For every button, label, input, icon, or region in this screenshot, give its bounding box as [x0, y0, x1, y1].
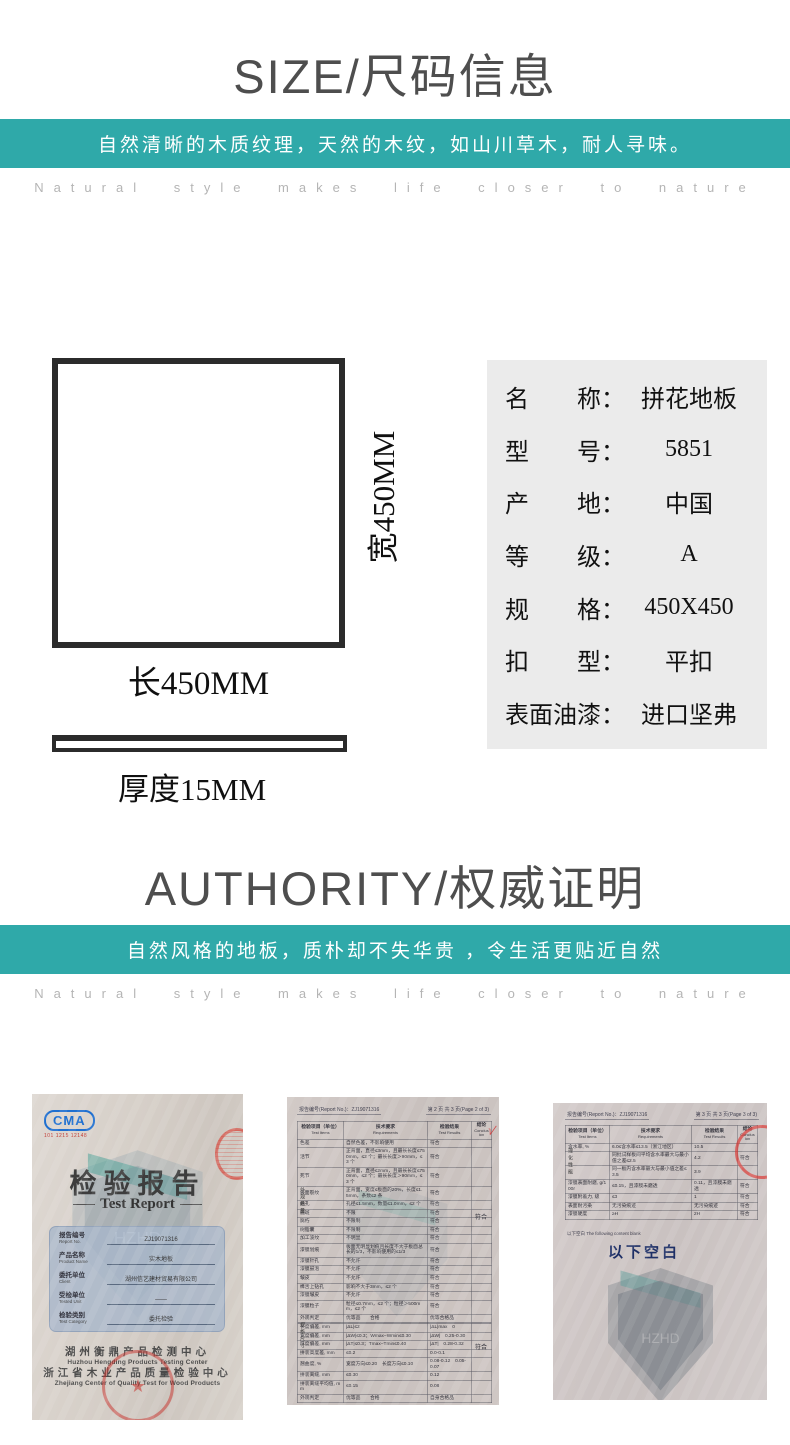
info-row: 受检单位 Tested Unit ——	[59, 1293, 215, 1305]
spec-label: 型 号	[505, 432, 601, 467]
table-cell	[472, 1300, 492, 1314]
info-value: 委托检验	[107, 1314, 215, 1325]
table-cell: 符合	[738, 1194, 758, 1203]
spec-value: 进口坚弗	[625, 695, 767, 730]
table-cell	[472, 1283, 492, 1292]
table-cell: 漆膜粒子	[298, 1300, 344, 1314]
info-label-en: Product Name	[59, 1260, 107, 1265]
spec-colon: ：	[601, 379, 625, 414]
table-row: 髓斑不限符合	[298, 1209, 492, 1218]
info-label-en: Report No.	[59, 1240, 107, 1245]
table-row: 漆膜粒子粒径≤0.7mm，≤2 个；粒径＞500mm，≤2 个符合	[298, 1300, 492, 1314]
size-section-title: SIZE/尺码信息	[0, 38, 790, 107]
conclusion-value: 符合	[471, 1212, 491, 1221]
width-dimension-label: 宽450MM	[358, 397, 398, 597]
group-label-dimensions: 规格尺寸	[299, 1322, 306, 1350]
table-cell: 同批试样板间平均含水率最大与最小值之差≤2.5	[610, 1152, 692, 1166]
report-number: 报告编号(Report No.)：ZJ19071316	[297, 1106, 381, 1115]
info-label: 检验类别 Test Category	[59, 1313, 107, 1325]
spec-row-origin: 产 地： 中国	[505, 484, 767, 519]
table-cell: 2H	[692, 1211, 738, 1220]
table-cell: 不限制	[344, 1218, 428, 1227]
table-cell: 符合	[428, 1167, 472, 1187]
table-row: 皱皮不允许符合	[298, 1274, 492, 1283]
seal-star-icon: ★	[130, 1376, 146, 1397]
group-label-physical: 理化性能	[567, 1148, 574, 1176]
report-page-header: 报告编号(Report No.)：ZJ19071316 第 3 页 共 3 页(…	[565, 1111, 759, 1120]
table-cell: 符合	[428, 1148, 472, 1168]
table-cell	[472, 1323, 492, 1332]
table-row: 漆膜硬度≥H2H符合	[566, 1211, 758, 1220]
table-cell: ≤0.2	[344, 1349, 428, 1358]
spec-colon: ：	[601, 537, 625, 572]
table-cell: ≤0.30	[344, 1372, 428, 1381]
table-cell: |ΔL|max 0	[428, 1323, 472, 1332]
spec-label: 表面油漆	[505, 695, 601, 730]
official-seal-icon: ★	[102, 1350, 174, 1420]
table-cell: 漆膜硬度	[566, 1211, 610, 1220]
table-row: 色差自然色差，不影响使用符合	[298, 1139, 492, 1148]
table-cell: 符合	[738, 1202, 758, 1211]
spec-label: 产 地	[505, 484, 601, 519]
spec-colon: ：	[601, 432, 625, 467]
table-cell: 腐朽	[298, 1218, 344, 1227]
spec-row-size: 规 格： 450X450	[505, 590, 767, 625]
watermark-shield-icon: HZHD	[598, 1258, 723, 1400]
table-cell: 1	[692, 1194, 738, 1203]
table-cell: 4.2	[692, 1152, 738, 1166]
table-row: 漆膜附着力, 级≤31符合	[566, 1194, 758, 1203]
col-header: 检验结果Test Results	[428, 1122, 472, 1140]
table-cell: 漆膜表面耐磨, g/100r	[566, 1180, 610, 1194]
spec-label: 等 级	[505, 537, 601, 572]
table-row: 树脂囊不限制符合	[298, 1226, 492, 1235]
table-cell: 正背面，直径≤3mm，且最长长度≤750mm，≤2 个；最长长度＞90mm，≤3…	[344, 1148, 428, 1168]
table-cell: 符合	[428, 1274, 472, 1283]
table-row: 厚度偏差, mm|ΔT|≤0.3；Tmax−Tmin≤0.40|ΔT| 0.28…	[298, 1341, 492, 1350]
spec-row-finish: 表面油漆： 进口坚弗	[505, 695, 767, 730]
table-cell: 不允许	[344, 1274, 428, 1283]
table-row: 拼装离缝, mm≤0.300.12	[298, 1372, 492, 1381]
table-row: 同批试样板间平均含水率最大与最小值之差≤2.54.2符合	[566, 1152, 758, 1166]
table-cell: 0.12	[428, 1372, 472, 1381]
table-cell: 孔径≤1.5mm，数量≤1.0mm，≤2 个	[344, 1201, 428, 1210]
spec-row-joint: 扣 型： 平扣	[505, 642, 767, 677]
table-cell: 宽度方向≤0.20 长度方向≤0.10	[344, 1358, 428, 1372]
table-row: 漆膜针孔不允许符合	[298, 1257, 492, 1266]
table-cell: 0.08-0.12 0.05-0.07	[428, 1358, 472, 1372]
table-row: 表面耐污染无污染痕迹无污染痕迹符合	[566, 1202, 758, 1211]
table-row: 同一板内含水率最大与最小值之差≤3.53.9	[566, 1166, 758, 1180]
table-cell: 死节	[298, 1167, 344, 1187]
table-row: 表面裂纹正背面，宽度≤板面的20%，长度≤1.5mm，条数≤2 条符合	[298, 1187, 492, 1201]
info-row: 产品名称 Product Name 实木地板	[59, 1253, 215, 1265]
info-label: 产品名称 Product Name	[59, 1253, 107, 1265]
table-cell: |ΔL|≤2	[344, 1323, 428, 1332]
table-cell: 加工波纹	[298, 1235, 344, 1244]
thickness-dimension-label: 厚度15MM	[118, 764, 266, 809]
table-cell: 皱皮	[298, 1274, 344, 1283]
table-cell: 符合	[428, 1139, 472, 1148]
test-results-table: 检验项目（单位）Test Items 技术要求Requirements 检验结果…	[297, 1121, 492, 1403]
table-cell	[472, 1226, 492, 1235]
spec-colon: ：	[601, 642, 625, 677]
table-cell: 不允许	[344, 1257, 428, 1266]
authority-banner: 自然风格的地板，质朴却不失华贵 ，令生活更贴近自然	[0, 925, 790, 974]
info-row: 委托单位 Client 湖州信艺建材贸易有限公司	[59, 1273, 215, 1285]
table-row: 死节正背面，直径≤2mm，且最长长度≤750mm，≤2 个；最长长度＞90mm，…	[298, 1167, 492, 1187]
spec-colon: ：	[601, 484, 625, 519]
table-cell: 不允许	[344, 1292, 428, 1301]
table-cell: 0.08	[428, 1380, 472, 1394]
table-cell: ≤0.15	[344, 1380, 428, 1394]
table-cell: 表面耐污染	[566, 1202, 610, 1211]
cma-accreditation-mark: CMA 101 1215 12148	[44, 1110, 95, 1139]
table-cell: 符合	[738, 1180, 758, 1194]
table-cell: 符合	[428, 1187, 472, 1201]
report-info-box: 报告编号 Report No. ZJ19071316 产品名称 Product …	[49, 1226, 225, 1332]
col-header: 检验结果Test Results	[692, 1126, 738, 1144]
report-subtitle-text: Test Report	[100, 1196, 175, 1213]
table-cell: 符合	[428, 1257, 472, 1266]
table-cell: ≤3	[610, 1194, 692, 1203]
table-cell	[472, 1167, 492, 1187]
table-body-dimensions: 长度偏差, mm|ΔL|≤2|ΔL|max 0宽度偏差, mm|ΔW|≤0.3；…	[298, 1323, 492, 1403]
table-cell	[472, 1292, 492, 1301]
table-cell	[472, 1274, 492, 1283]
table-body-physical: 含水率, %6.0≤含水率≤13.5（浙江地区）10.5同批试样板间平均含水率最…	[566, 1143, 758, 1219]
table-row: 含水率, %6.0≤含水率≤13.5（浙江地区）10.5	[566, 1143, 758, 1152]
spec-value: A	[625, 541, 767, 568]
table-cell	[472, 1257, 492, 1266]
info-label-en: Client	[59, 1280, 107, 1285]
table-cell	[472, 1332, 492, 1341]
table-row: 漆膜划痕板面无明显划痕且长度不大于板面总长的1/3，不影响使用的≤1/3符合	[298, 1243, 492, 1257]
info-label-en: Test Category	[59, 1320, 107, 1325]
table-cell: 符合	[428, 1292, 472, 1301]
table-cell: ≤0.15，且漆膜未磨透	[610, 1180, 692, 1194]
info-value: 湖州信艺建材贸易有限公司	[107, 1274, 215, 1285]
spec-value: 中国	[625, 484, 767, 519]
table-cell: 活节	[298, 1148, 344, 1168]
table-cell: 外观判定	[298, 1394, 344, 1403]
table-cell: |ΔT| 0.28-0.32	[428, 1341, 472, 1350]
spec-value: 450X450	[625, 594, 767, 621]
spec-row-name: 名 称： 拼花地板	[505, 379, 767, 414]
report-number: 报告编号(Report No.)：ZJ19071316	[565, 1111, 649, 1120]
table-cell: 正背面，直径≤2mm，且最长长度≤750mm，≤2 个；最长长度＞90mm，≤3…	[344, 1167, 428, 1187]
table-cell: 优等品 合格	[344, 1394, 428, 1403]
authority-subtitle: Natural style makes life closer to natur…	[0, 986, 790, 1001]
spec-label: 规 格	[505, 590, 601, 625]
info-label: 委托单位 Client	[59, 1273, 107, 1285]
table-cell: 榫舌上钻孔	[298, 1283, 344, 1292]
info-label: 报告编号 Report No.	[59, 1233, 107, 1245]
table-cell: 漆膜附着力, 级	[566, 1194, 610, 1203]
table-cell	[472, 1394, 492, 1403]
table-cell: 符合	[428, 1266, 472, 1275]
table-cell	[472, 1201, 492, 1210]
certificate-page3-photo: 报告编号(Report No.)：ZJ19071316 第 3 页 共 3 页(…	[553, 1103, 767, 1400]
col-header: 检验项目（单位）Test Items	[298, 1122, 344, 1140]
table-row: 漆膜鼓泡不允许符合	[298, 1266, 492, 1275]
table-row: 加工波纹不明显符合	[298, 1235, 492, 1244]
table-cell: 0.0-0.1	[428, 1349, 472, 1358]
table-cell: 板面无明显划痕且长度不大于板面总长的1/3，不影响使用的≤1/3	[344, 1243, 428, 1257]
size-subtitle: Natural style makes life closer to natur…	[0, 180, 790, 195]
table-row: 外观判定优等品 合格自身合格品	[298, 1394, 492, 1403]
table-cell: 符合	[428, 1243, 472, 1257]
info-row: 检验类别 Test Category 委托检验	[59, 1313, 215, 1325]
table-cell	[472, 1380, 492, 1394]
group-label-appearance: 外观质量	[299, 1187, 306, 1215]
spec-label: 名 称	[505, 379, 601, 414]
authority-banner-text: 自然风格的地板，质朴却不失华贵 ，令生活更贴近自然	[127, 936, 663, 963]
table-row: 拼装高度差, mm≤0.20.0-0.1	[298, 1349, 492, 1358]
report-page-header: 报告编号(Report No.)：ZJ19071316 第 2 页 共 3 页(…	[297, 1106, 491, 1115]
table-row: 腐朽不限制符合	[298, 1218, 492, 1227]
table-cell: 拼装离缝平均值, mm	[298, 1380, 344, 1394]
spec-row-model: 型 号： 5851	[505, 432, 767, 467]
col-header: 检验项目（单位）Test Items	[566, 1126, 610, 1144]
table-cell	[472, 1243, 492, 1257]
table-cell: 自然色差，不影响使用	[344, 1139, 428, 1148]
col-header: 技术要求Requirements	[610, 1126, 692, 1144]
table-cell	[472, 1358, 492, 1372]
table-cell: 3.9	[692, 1166, 738, 1180]
table-cell: |ΔW|≤0.3；Wmax−Wmin≤0.30	[344, 1332, 428, 1341]
table-cell: |ΔW| 0.25-0.30	[428, 1332, 472, 1341]
table-cell: 拼装高度差, mm	[298, 1349, 344, 1358]
table-cell: 优等合格品	[428, 1314, 472, 1323]
certificate-cover-photo: CMA 101 1215 12148 HZHD 检验报告 Test Report…	[32, 1094, 243, 1420]
certificate-page2-photo: 报告编号(Report No.)：ZJ19071316 第 2 页 共 3 页(…	[287, 1097, 499, 1405]
table-cell: 树脂囊	[298, 1226, 344, 1235]
table-cell: 正背面，宽度≤板面的20%，长度≤1.5mm，条数≤2 条	[344, 1187, 428, 1201]
spec-label: 扣 型	[505, 642, 601, 677]
table-cell: 6.0≤含水率≤13.5（浙江地区）	[610, 1143, 692, 1152]
table-cell: 0.11，且漆膜未磨透	[692, 1180, 738, 1194]
cma-number: 101 1215 12148	[44, 1133, 95, 1139]
table-cell: 无污染痕迹	[692, 1202, 738, 1211]
page-indicator: 第 3 页 共 3 页(Page 3 of 3)	[694, 1111, 759, 1120]
table-cell: 符合	[428, 1218, 472, 1227]
spec-panel: 名 称： 拼花地板 型 号： 5851 产 地： 中国 等 级： A 规 格： …	[487, 360, 767, 749]
table-row: 翘曲度, %宽度方向≤0.20 长度方向≤0.100.08-0.12 0.05-…	[298, 1358, 492, 1372]
spec-colon: ：	[601, 695, 625, 730]
table-cell: 不限	[344, 1209, 428, 1218]
test-results-table: 检验项目（单位）Test Items 技术要求Requirements 检验结果…	[565, 1125, 758, 1220]
blank-note: 以下空白 The following content blank	[567, 1231, 641, 1237]
table-cell: 漆膜鼓泡	[298, 1266, 344, 1275]
spec-row-grade: 等 级： A	[505, 537, 767, 572]
info-row: 报告编号 Report No. ZJ19071316	[59, 1233, 215, 1245]
plank-top-view	[52, 358, 345, 648]
size-banner-text: 自然清晰的木质纹理，天然的木纹，如山川草木，耐人寻味。	[98, 130, 692, 157]
table-row: 拼装离缝平均值, mm≤0.150.08	[298, 1380, 492, 1394]
table-cell: 色差	[298, 1139, 344, 1148]
table-cell	[472, 1187, 492, 1201]
table-cell: 翘曲度, %	[298, 1358, 344, 1372]
table-cell	[472, 1314, 492, 1323]
table-cell: |ΔT|≤0.3；Tmax−Tmin≤0.40	[344, 1341, 428, 1350]
table-row: 活节正背面，直径≤3mm，且最长长度≤750mm，≤2 个；最长长度＞90mm，…	[298, 1148, 492, 1168]
svg-text:HZHD: HZHD	[641, 1331, 679, 1346]
conclusion-value: 符合	[471, 1342, 491, 1351]
table-cell: 影响不大于3mm，≤2 个	[344, 1283, 428, 1292]
table-cell: 同一板内含水率最大与最小值之差≤3.5	[610, 1166, 692, 1180]
report-subtitle: Test Report	[68, 1196, 207, 1213]
table-row: 蛀孔孔径≤1.5mm，数量≤1.0mm，≤2 个符合	[298, 1201, 492, 1210]
table-cell: 符合	[428, 1283, 472, 1292]
table-cell: 符合	[428, 1300, 472, 1314]
table-cell	[472, 1148, 492, 1168]
table-cell	[472, 1266, 492, 1275]
table-cell: 不限制	[344, 1226, 428, 1235]
table-header: 检验项目（单位）Test Items 技术要求Requirements 检验结果…	[566, 1126, 758, 1144]
length-dimension-label: 长450MM	[52, 656, 345, 704]
table-cell: 符合	[428, 1235, 472, 1244]
table-cell: 粒径≤0.7mm，≤2 个；粒径＞500mm，≤2 个	[344, 1300, 428, 1314]
table-cell: 优等品 合格	[344, 1314, 428, 1323]
product-detail-page: SIZE/尺码信息 自然清晰的木质纹理，天然的木纹，如山川草木，耐人寻味。 Na…	[0, 0, 790, 1445]
table-cell: 漆膜皱皮	[298, 1292, 344, 1301]
info-value: ——	[107, 1297, 215, 1305]
table-cell: 符合	[428, 1226, 472, 1235]
authority-section-title: AUTHORITY/权威证明	[0, 850, 790, 919]
table-cell: 不允许	[344, 1266, 428, 1275]
table-cell: 符合	[428, 1209, 472, 1218]
spec-colon: ：	[601, 590, 625, 625]
info-label-en: Tested Unit	[59, 1300, 107, 1305]
info-label: 受检单位 Tested Unit	[59, 1293, 107, 1305]
table-cell	[472, 1372, 492, 1381]
size-banner: 自然清晰的木质纹理，天然的木纹，如山川草木，耐人寻味。	[0, 119, 790, 168]
table-cell	[472, 1139, 492, 1148]
table-cell: 10.5	[692, 1143, 738, 1152]
page-indicator: 第 2 页 共 3 页(Page 2 of 3)	[426, 1106, 491, 1115]
table-cell: 自身合格品	[428, 1394, 472, 1403]
blank-below-label: 以下空白	[608, 1241, 680, 1262]
cma-logo-icon: CMA	[44, 1110, 95, 1131]
table-cell: 拼装离缝, mm	[298, 1372, 344, 1381]
spec-value: 平扣	[625, 642, 767, 677]
plank-side-view	[52, 735, 347, 752]
table-cell: 不明显	[344, 1235, 428, 1244]
table-row: 外观判定优等品 合格优等合格品	[298, 1314, 492, 1323]
spec-value: 5851	[625, 436, 767, 463]
table-cell	[472, 1235, 492, 1244]
table-cell: 漆膜针孔	[298, 1257, 344, 1266]
table-header: 检验项目（单位）Test Items 技术要求Requirements 检验结果…	[298, 1122, 492, 1140]
table-cell: 符合	[428, 1201, 472, 1210]
info-value: 实木地板	[107, 1254, 215, 1265]
table-row: 长度偏差, mm|ΔL|≤2|ΔL|max 0	[298, 1323, 492, 1332]
table-cell: ≥H	[610, 1211, 692, 1220]
info-value: ZJ19071316	[107, 1237, 215, 1245]
table-row: 漆膜皱皮不允许符合	[298, 1292, 492, 1301]
table-row: 漆膜表面耐磨, g/100r≤0.15，且漆膜未磨透0.11，且漆膜未磨透符合	[566, 1180, 758, 1194]
table-cell: 符合	[738, 1211, 758, 1220]
spec-value: 拼花地板	[625, 379, 767, 414]
table-row: 宽度偏差, mm|ΔW|≤0.3；Wmax−Wmin≤0.30|ΔW| 0.25…	[298, 1332, 492, 1341]
table-row: 榫舌上钻孔影响不大于3mm，≤2 个符合	[298, 1283, 492, 1292]
table-cell: 无污染痕迹	[610, 1202, 692, 1211]
table-body-appearance: 色差自然色差，不影响使用符合活节正背面，直径≤3mm，且最长长度≤750mm，≤…	[298, 1139, 492, 1323]
col-header: 技术要求Requirements	[344, 1122, 428, 1140]
table-cell: 漆膜划痕	[298, 1243, 344, 1257]
